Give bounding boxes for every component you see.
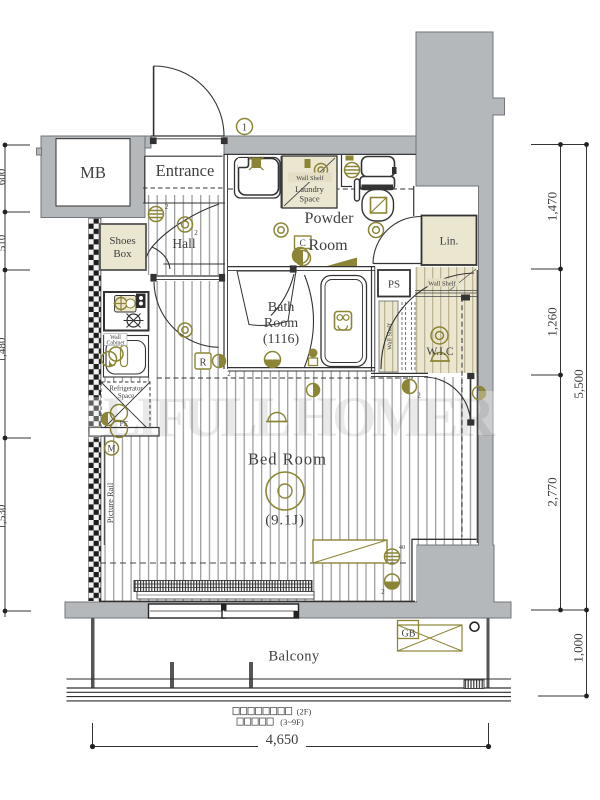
- svg-text:2,770: 2,770: [545, 477, 560, 506]
- svg-text:1,480: 1,480: [0, 337, 8, 362]
- svg-text:(1116): (1116): [263, 332, 300, 347]
- svg-text:Bed Room: Bed Room: [248, 450, 327, 469]
- svg-text:Powder: Powder: [305, 210, 355, 227]
- svg-text:Wall Shelf: Wall Shelf: [387, 322, 394, 350]
- svg-text:5,500: 5,500: [571, 369, 586, 398]
- svg-text:1,530: 1,530: [0, 504, 8, 529]
- svg-text:Room: Room: [308, 237, 348, 254]
- svg-text:2: 2: [194, 229, 198, 237]
- svg-text:GB: GB: [402, 629, 416, 640]
- svg-text:Wall Shelf: Wall Shelf: [428, 281, 456, 288]
- svg-text:2: 2: [227, 370, 231, 378]
- svg-text:Bath: Bath: [268, 300, 294, 315]
- svg-text:1,470: 1,470: [545, 192, 560, 221]
- svg-text:2: 2: [381, 588, 385, 596]
- svg-text:600: 600: [0, 168, 8, 185]
- svg-text:Space: Space: [299, 194, 320, 204]
- svg-text:Lin.: Lin.: [440, 236, 459, 248]
- svg-text:R: R: [199, 358, 206, 369]
- svg-text:40: 40: [399, 544, 406, 551]
- svg-text:Entrance: Entrance: [156, 161, 215, 180]
- svg-text:510: 510: [0, 234, 8, 251]
- svg-text:(9.1J): (9.1J): [265, 513, 304, 529]
- svg-text:Shoes: Shoes: [109, 235, 135, 247]
- svg-text:W.I.C: W.I.C: [426, 346, 453, 358]
- svg-text:1,260: 1,260: [545, 307, 560, 336]
- svg-text:Picture Rail: Picture Rail: [105, 482, 115, 523]
- svg-text:MB: MB: [80, 163, 106, 182]
- svg-text:LIFULL HOMER: LIFULL HOMER: [103, 386, 496, 449]
- svg-text:C: C: [300, 239, 306, 249]
- svg-text:(2F): (2F): [297, 707, 312, 717]
- svg-text:Hall: Hall: [172, 236, 195, 251]
- svg-text:Balcony: Balcony: [268, 649, 319, 665]
- svg-text:Wall Shelf: Wall Shelf: [296, 175, 324, 182]
- svg-text:2: 2: [165, 203, 169, 211]
- svg-text:Cabinet: Cabinet: [106, 341, 124, 347]
- svg-text:Laundry: Laundry: [295, 184, 325, 194]
- svg-text:Box: Box: [113, 248, 132, 260]
- svg-text:(3~9F): (3~9F): [280, 717, 304, 727]
- svg-text:Room: Room: [264, 316, 298, 331]
- svg-text:4,650: 4,650: [266, 732, 299, 748]
- svg-text:1,000: 1,000: [571, 633, 586, 662]
- svg-text:1: 1: [242, 123, 247, 134]
- svg-text:PS: PS: [388, 279, 400, 291]
